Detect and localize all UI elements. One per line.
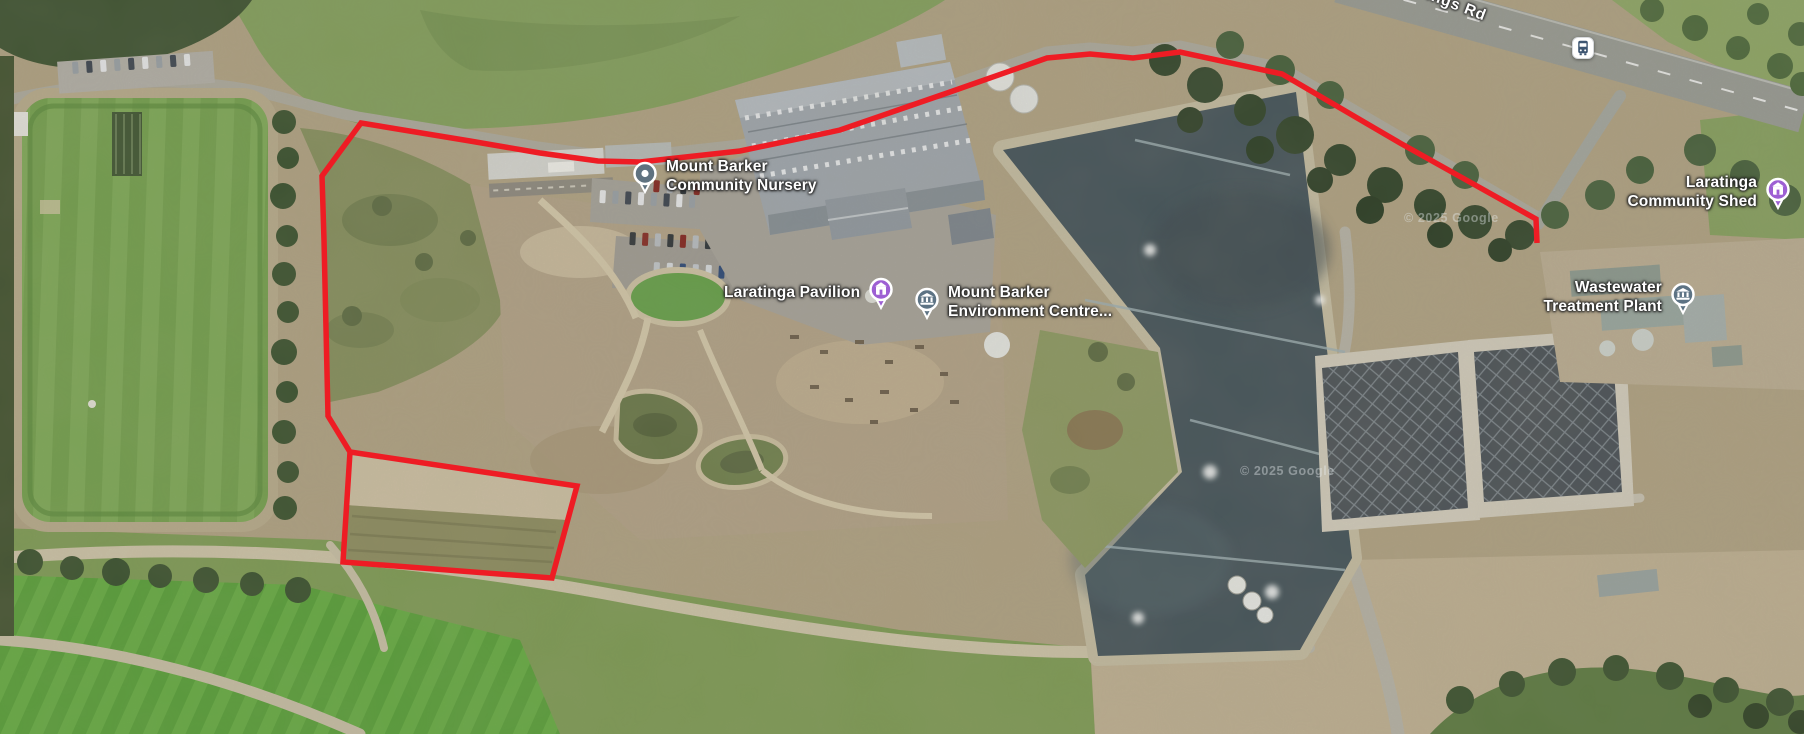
building-pin-icon[interactable] <box>1763 176 1793 210</box>
poi-label-nursery: Mount Barker Community Nursery <box>666 158 817 196</box>
poi-label-community-shed: Laratinga Community Shed <box>1627 174 1757 212</box>
poi-laratinga-pavilion[interactable]: Laratinga Pavilion <box>724 276 896 310</box>
poi-label-pavilion: Laratinga Pavilion <box>724 284 860 303</box>
museum-pin-icon[interactable] <box>1668 281 1698 315</box>
poi-community-nursery[interactable]: Mount Barker Community Nursery <box>630 158 817 196</box>
place-pin-icon[interactable] <box>630 160 660 194</box>
bus-stop-icon[interactable] <box>1572 37 1594 59</box>
building-pin-icon[interactable] <box>866 276 896 310</box>
poi-label-treatment-plant: Wastewater Treatment Plant <box>1543 279 1662 317</box>
red-boundary-annotation <box>0 0 1804 734</box>
poi-label-environment-centre: Mount Barker Environment Centre... <box>948 284 1112 322</box>
map-canvas[interactable]: © 2025 Google © 2025 Google Springs Rd M… <box>0 0 1804 734</box>
poi-environment-centre[interactable]: Mount Barker Environment Centre... <box>912 284 1112 322</box>
poi-community-shed[interactable]: Laratinga Community Shed <box>1627 174 1793 212</box>
museum-pin-icon[interactable] <box>912 286 942 320</box>
poi-treatment-plant[interactable]: Wastewater Treatment Plant <box>1543 279 1698 317</box>
